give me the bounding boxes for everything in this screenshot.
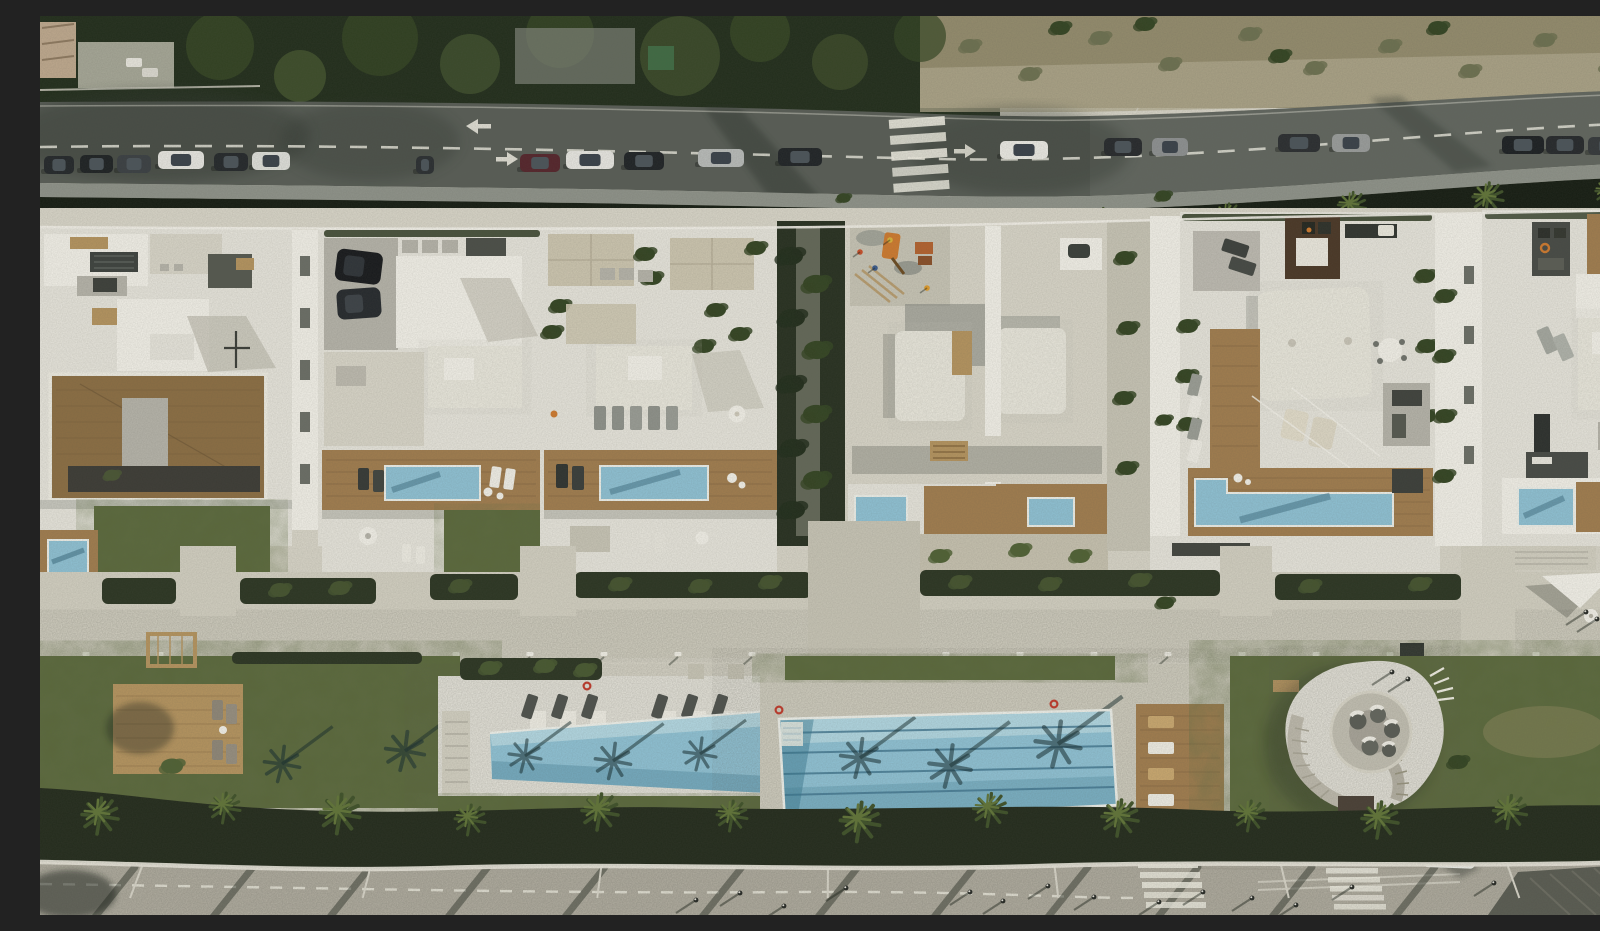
film-grain <box>40 16 1600 915</box>
aerial-scene <box>40 16 1600 915</box>
aerial-photograph: Aerial drone photograph of a beachfront … <box>40 16 1600 915</box>
